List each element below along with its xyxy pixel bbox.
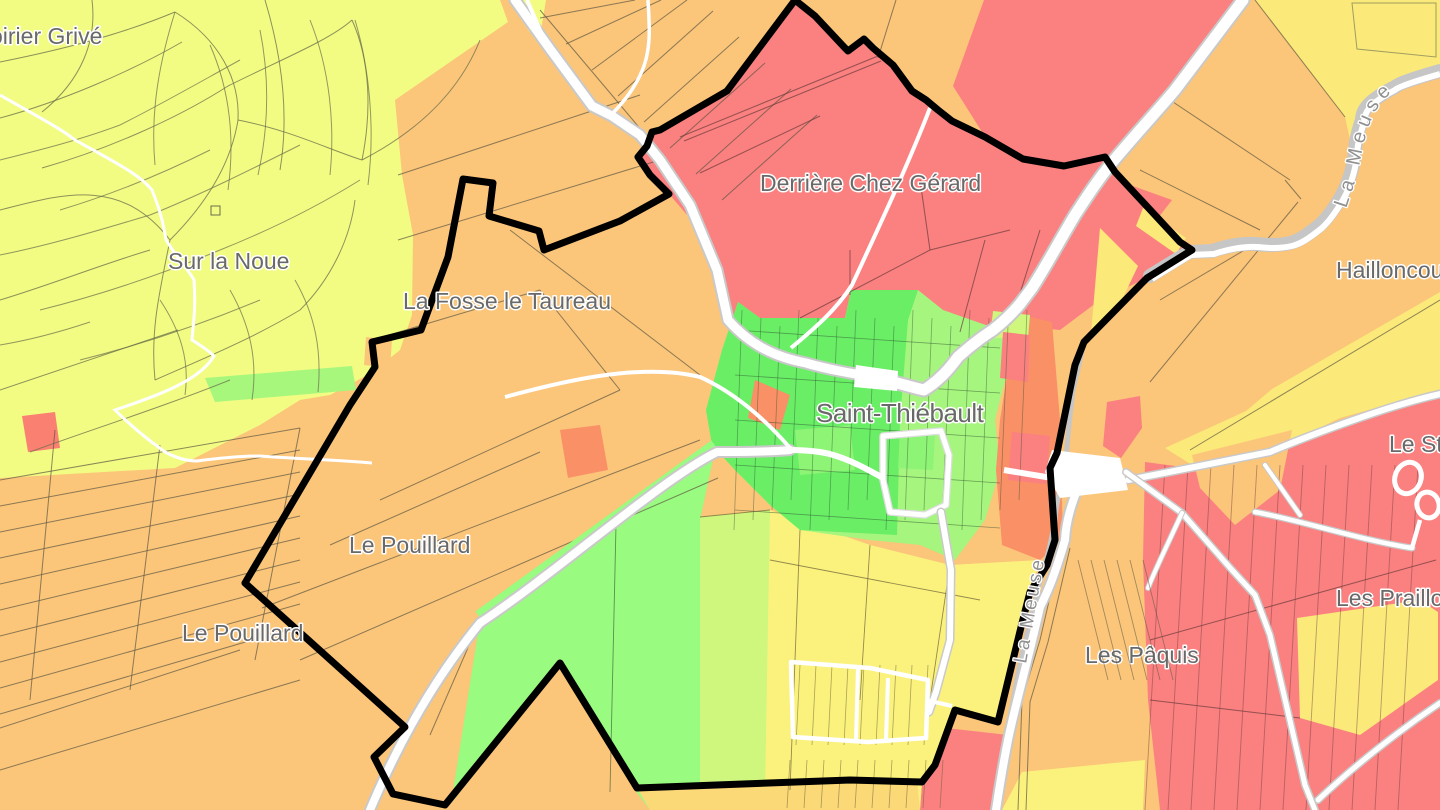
svg-text:oirier Grivé: oirier Grivé <box>0 23 102 49</box>
svg-text:Le Stade: Le Stade <box>1389 431 1440 457</box>
svg-text:Hailloncourt: Hailloncourt <box>1336 257 1440 283</box>
svg-text:La Fosse le Taureau: La Fosse le Taureau <box>403 288 611 314</box>
svg-text:Sur la Noue: Sur la Noue <box>168 248 289 274</box>
svg-text:Derrière Chez Gérard: Derrière Chez Gérard <box>760 170 981 196</box>
svg-text:Saint-Thiébault: Saint-Thiébault <box>816 398 985 428</box>
svg-text:Les Praillons: Les Praillons <box>1336 585 1440 611</box>
svg-text:Le Pouillard: Le Pouillard <box>182 620 303 646</box>
svg-text:Le Pouillard: Le Pouillard <box>349 532 470 558</box>
